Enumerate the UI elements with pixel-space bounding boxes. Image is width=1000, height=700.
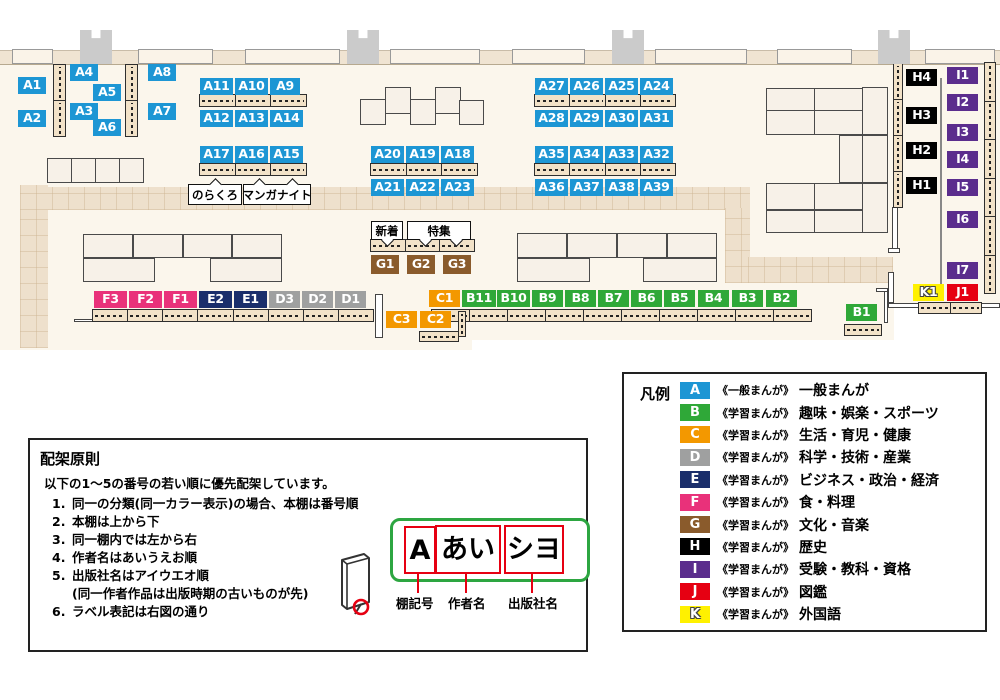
wall-window (390, 49, 480, 64)
legend-row-H: H《学習まんが》歴史 (680, 536, 939, 558)
principle-number: 6. (52, 603, 72, 621)
shelf-label-B3: B3 (732, 290, 763, 307)
shelf-label-I6: I6 (947, 211, 978, 228)
shelf-label-I7: I7 (947, 262, 978, 279)
label-shelf-code-box: A (404, 526, 436, 574)
shelf-label-A22: A22 (406, 179, 439, 196)
legend-series: 《学習まんが》 (717, 539, 794, 555)
reading-table (839, 135, 863, 183)
shelf-label-F2: F2 (129, 291, 162, 308)
shelf-label-A25: A25 (605, 78, 638, 95)
shelf-label-A23: A23 (441, 179, 474, 196)
shelf-label-C3: C3 (386, 311, 417, 328)
shelf-label-E1: E1 (234, 291, 267, 308)
reading-table (643, 258, 717, 282)
shelf-label-A27: A27 (535, 78, 568, 95)
callout-text: 特集 (428, 223, 451, 239)
principle-item-7: 6.ラベル表記は右図の通り (52, 603, 358, 621)
legend-rows: A《一般まんが》一般まんがB《学習まんが》趣味・娯楽・スポーツC《学習まんが》生… (680, 379, 939, 625)
reading-table (862, 87, 888, 135)
legend-series: 《学習まんが》 (717, 517, 794, 533)
shelf-label-C1: C1 (429, 290, 460, 307)
pillar (612, 30, 644, 64)
bookshelf (844, 324, 882, 336)
shelf-label-B4: B4 (698, 290, 729, 307)
legend-category: 外国語 (799, 604, 841, 624)
reading-table (766, 210, 815, 233)
book-illustration (330, 550, 382, 616)
bookshelf (92, 309, 374, 322)
shelf-label-J1: J1 (947, 284, 978, 301)
shelf-label-A11: A11 (200, 78, 233, 95)
shelf-label-I3: I3 (947, 124, 978, 141)
reading-table (766, 88, 815, 111)
legend-row-C: C《学習まんが》生活・育児・健康 (680, 424, 939, 446)
principle-number: 1. (52, 495, 72, 513)
shelf-label-A33: A33 (605, 146, 638, 163)
shelf-label-A14: A14 (270, 110, 303, 127)
principle-number: 2. (52, 513, 72, 531)
legend-row-A: A《一般まんが》一般まんが (680, 379, 939, 401)
shelf-label-A7: A7 (148, 103, 176, 120)
principle-text: ラベル表記は右図の通り (72, 603, 210, 621)
principles-title: 配架原則 (40, 448, 100, 469)
reading-table (183, 234, 232, 258)
wall-segment (892, 207, 898, 253)
wall-window (245, 49, 340, 64)
legend-series: 《学習まんが》 (717, 494, 794, 510)
wall-segment (74, 319, 94, 322)
bookshelf (984, 62, 996, 294)
shelf-label-I5: I5 (947, 179, 978, 196)
legend-category: 趣味・娯楽・スポーツ (799, 403, 939, 423)
bookshelf (125, 64, 138, 137)
legend-row-E: E《学習まんが》ビジネス・政治・経済 (680, 469, 939, 491)
shelf-label-A5: A5 (93, 84, 121, 101)
shelf-label-G2: G2 (407, 255, 435, 274)
shelf-label-B7: B7 (598, 290, 629, 307)
legend-series: 《学習まんが》 (717, 472, 794, 488)
bookshelf (199, 94, 307, 107)
reading-table (83, 258, 155, 282)
legend-chip-A: A (680, 382, 710, 399)
shelf-label-H1: H1 (906, 177, 937, 194)
legend-chip-D: D (680, 449, 710, 466)
shelf-label-A34: A34 (570, 146, 603, 163)
shelf-label-H2: H2 (906, 142, 937, 159)
shelf-label-A3: A3 (70, 103, 98, 120)
legend-row-J: J《学習まんが》図鑑 (680, 581, 939, 603)
wall-window (777, 49, 852, 64)
legend-chip-C: C (680, 426, 710, 443)
shelf-label-F3: F3 (94, 291, 127, 308)
shelf-label-G1: G1 (371, 255, 399, 274)
shelf-label-A16: A16 (235, 146, 268, 163)
legend-chip-H: H (680, 538, 710, 555)
principle-item-5: 5.出版社名はアイウエオ順 (52, 567, 358, 585)
callout-text: マンガナイト (243, 187, 312, 203)
legend-category: 食・料理 (799, 492, 855, 512)
callout-のらくろ: のらくろ (188, 184, 242, 205)
wall-segment (884, 289, 888, 323)
principle-item-6: (同一作者作品は出版時期の古いものが先) (52, 585, 358, 603)
legend-row-I: I《学習まんが》受験・教科・資格 (680, 558, 939, 580)
legend-category: 図鑑 (799, 582, 827, 602)
shelf-label-F1: F1 (164, 291, 197, 308)
wall-segment (888, 272, 894, 303)
principle-text: 同一棚内では左から右 (72, 531, 197, 549)
shelf-label-A31: A31 (640, 110, 673, 127)
shelf-label-D1: D1 (335, 291, 366, 308)
principle-item-2: 2.本棚は上から下 (52, 513, 358, 531)
legend-category: 歴史 (799, 537, 827, 557)
shelf-label-G3: G3 (443, 255, 471, 274)
reading-table (517, 258, 590, 282)
principle-text: 作者名はあいうえお順 (72, 549, 197, 567)
principle-text: 本棚は上から下 (72, 513, 160, 531)
shelf-label-A39: A39 (640, 179, 673, 196)
shelf-label-A26: A26 (570, 78, 603, 95)
callout-新着: 新着 (371, 221, 403, 240)
shelf-label-I1: I1 (947, 67, 978, 84)
bookshelf (419, 331, 459, 342)
legend-series: 《一般まんが》 (717, 382, 794, 398)
legend-chip-E: E (680, 471, 710, 488)
shelf-label-A1: A1 (18, 77, 46, 94)
legend-chip-B: B (680, 404, 710, 421)
bookshelf (534, 94, 676, 107)
shelf-label-B11: B11 (462, 290, 496, 307)
legend-title: 凡例 (640, 383, 670, 404)
wall-segment (375, 294, 383, 338)
bookshelf (199, 163, 307, 176)
shelf-label-I2: I2 (947, 94, 978, 111)
legend-row-G: G《学習まんが》文化・音楽 (680, 513, 939, 535)
library-floor-map-page: A1A2A4A5A3A6A8A7A11A10A9A12A13A14A17A16A… (0, 0, 1000, 700)
reading-table (517, 233, 567, 258)
legend-series: 《学習まんが》 (717, 561, 794, 577)
reading-table (47, 158, 144, 183)
shelf-label-B6: B6 (631, 290, 662, 307)
principle-number: 5. (52, 567, 72, 585)
legend-category: ビジネス・政治・経済 (799, 470, 939, 490)
wall-segment (876, 288, 888, 292)
shelf-label-A10: A10 (235, 78, 268, 95)
principle-item-4: 4.作者名はあいうえお順 (52, 549, 358, 567)
reading-table (814, 88, 863, 111)
shelf-label-B2: B2 (766, 290, 797, 307)
legend-series: 《学習まんが》 (717, 427, 794, 443)
shelf-label-H4: H4 (906, 69, 937, 86)
bookshelf (893, 63, 903, 208)
legend-chip-J: J (680, 583, 710, 600)
shelf-label-A2: A2 (18, 110, 46, 127)
reading-table (862, 135, 888, 183)
callout-マンガナイト: マンガナイト (243, 184, 311, 205)
shelf-label-B5: B5 (664, 290, 695, 307)
legend-chip-F: F (680, 494, 710, 511)
wall-line (940, 78, 942, 293)
principles-list: 1.同一の分類(同一カラー表示)の場合、本棚は番号順2.本棚は上から下3.同一棚… (52, 495, 358, 621)
legend-category: 科学・技術・産業 (799, 447, 911, 467)
shelf-label-A9: A9 (270, 78, 300, 95)
legend-category: 生活・育児・健康 (799, 425, 911, 445)
reading-table (814, 183, 863, 210)
shelf-label-A38: A38 (605, 179, 638, 196)
legend-panel: 凡例 A《一般まんが》一般まんがB《学習まんが》趣味・娯楽・スポーツC《学習まん… (622, 372, 987, 632)
reading-table (360, 99, 386, 125)
legend-category: 受験・教科・資格 (799, 559, 911, 579)
reading-table (410, 99, 436, 125)
shelf-label-A35: A35 (535, 146, 568, 163)
shelf-label-A15: A15 (270, 146, 303, 163)
reading-table (814, 210, 863, 233)
legend-row-F: F《学習まんが》食・料理 (680, 491, 939, 513)
shelving-principles-panel: 配架原則 以下の1〜5の番号の若い順に優先配架しています。 1.同一の分類(同一… (28, 438, 588, 652)
principle-text: 出版社名はアイウエオ順 (72, 567, 209, 585)
reading-table (862, 183, 888, 233)
label-publisher-box: シヨ (504, 525, 564, 574)
caption-shelf-code: 棚記号 (396, 593, 434, 612)
principle-number: 4. (52, 549, 72, 567)
reading-table (210, 258, 282, 282)
legend-row-D: D《学習まんが》科学・技術・産業 (680, 446, 939, 468)
shelf-label-A21: A21 (371, 179, 404, 196)
shelf-label-B8: B8 (565, 290, 596, 307)
principle-text: 同一の分類(同一カラー表示)の場合、本棚は番号順 (72, 495, 358, 513)
shelf-label-A32: A32 (640, 146, 673, 163)
shelf-label-A29: A29 (570, 110, 603, 127)
shelf-label-A37: A37 (570, 179, 603, 196)
wall-window (12, 49, 53, 64)
shelf-label-A18: A18 (441, 146, 474, 163)
reading-table (459, 100, 484, 125)
reading-table (232, 234, 282, 258)
legend-chip-I: I (680, 561, 710, 578)
tile-walkway (748, 257, 893, 283)
shelf-label-H3: H3 (906, 107, 937, 124)
shelf-label-A13: A13 (235, 110, 268, 127)
shelf-label-A8: A8 (148, 64, 176, 81)
tile-walkway (725, 208, 750, 283)
reading-table (83, 234, 133, 258)
shelf-label-A24: A24 (640, 78, 673, 95)
bookshelf (431, 309, 812, 322)
principle-item-3: 3.同一棚内では左から右 (52, 531, 358, 549)
bookshelf (370, 163, 478, 176)
reading-table (385, 87, 411, 114)
legend-chip-K: K (680, 606, 710, 623)
pillar (878, 30, 910, 64)
legend-series: 《学習まんが》 (717, 584, 794, 600)
legend-category: 文化・音楽 (799, 515, 869, 535)
caption-publisher: 出版社名 (508, 593, 558, 612)
shelf-label-B10: B10 (497, 290, 530, 307)
shelf-label-B1: B1 (846, 304, 877, 321)
shelf-label-E2: E2 (199, 291, 232, 308)
legend-series: 《学習まんが》 (717, 449, 794, 465)
legend-category: 一般まんが (799, 380, 869, 400)
callout-特集: 特集 (407, 221, 471, 240)
reading-table (766, 183, 815, 210)
shelf-label-A17: A17 (200, 146, 233, 163)
shelf-label-A19: A19 (406, 146, 439, 163)
wall-window (138, 49, 213, 64)
legend-series: 《学習まんが》 (717, 606, 794, 622)
shelf-label-K1: K1 (913, 284, 944, 301)
principle-number: 3. (52, 531, 72, 549)
wall-segment (888, 248, 900, 253)
legend-row-K: K《学習まんが》外国語 (680, 603, 939, 625)
reading-table (617, 233, 667, 258)
bookshelf (918, 302, 982, 314)
legend-series: 《学習まんが》 (717, 405, 794, 421)
shelf-label-B9: B9 (532, 290, 563, 307)
shelf-label-A6: A6 (93, 119, 121, 136)
pillar (347, 30, 379, 64)
principle-text: (同一作者作品は出版時期の古いものが先) (72, 585, 308, 603)
principle-item-1: 1.同一の分類(同一カラー表示)の場合、本棚は番号順 (52, 495, 358, 513)
shelf-label-D3: D3 (269, 291, 300, 308)
principle-number (52, 585, 72, 603)
bookshelf (534, 163, 676, 176)
reading-table (133, 234, 183, 258)
bookshelf (53, 64, 66, 137)
label-author-box: あい (435, 525, 501, 574)
legend-row-B: B《学習まんが》趣味・娯楽・スポーツ (680, 401, 939, 423)
reading-table (567, 233, 617, 258)
bookshelf (458, 311, 466, 337)
wall-window (512, 49, 585, 64)
shelf-label-C2: C2 (420, 311, 451, 328)
caption-author: 作者名 (448, 593, 486, 612)
shelf-label-A20: A20 (371, 146, 404, 163)
shelf-label-A4: A4 (70, 64, 98, 81)
shelf-label-I4: I4 (947, 151, 978, 168)
shelf-label-A36: A36 (535, 179, 568, 196)
reading-table (766, 110, 815, 135)
shelf-label-A28: A28 (535, 110, 568, 127)
shelf-label-A30: A30 (605, 110, 638, 127)
shelf-label-D2: D2 (302, 291, 333, 308)
reading-table (814, 110, 863, 135)
reading-table (435, 87, 461, 114)
reading-table (667, 233, 717, 258)
wall-window (655, 49, 747, 64)
principles-intro: 以下の1〜5の番号の若い順に優先配架しています。 (44, 473, 335, 492)
shelf-label-A12: A12 (200, 110, 233, 127)
legend-chip-G: G (680, 516, 710, 533)
pillar (80, 30, 112, 64)
